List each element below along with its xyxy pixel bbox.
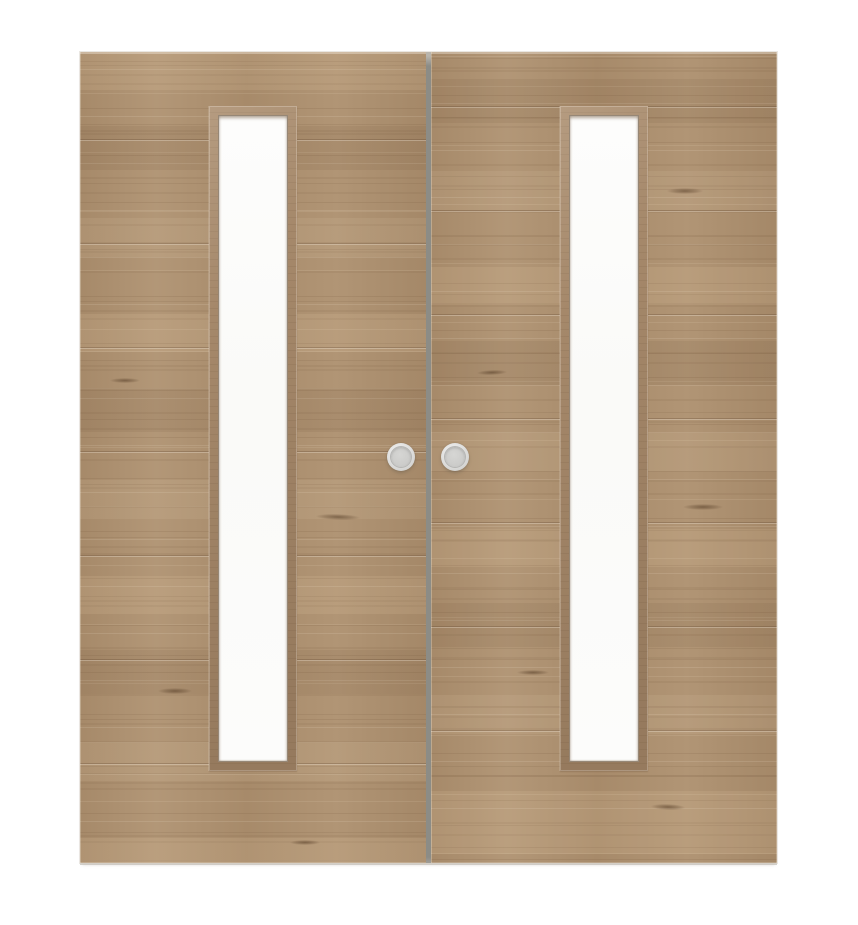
left-handle-recess bbox=[391, 447, 411, 467]
wood-knot bbox=[476, 369, 506, 375]
wood-knot bbox=[517, 670, 549, 675]
wood-knot bbox=[650, 803, 684, 810]
product-image bbox=[0, 0, 858, 925]
double-door-assembly bbox=[80, 52, 777, 863]
right-door-glazing-frame bbox=[560, 106, 648, 771]
left-door-glass-panel bbox=[218, 115, 288, 762]
left-door-glazing-frame bbox=[209, 106, 297, 771]
wood-knot bbox=[683, 504, 723, 510]
wood-knot bbox=[316, 513, 360, 521]
wood-knot bbox=[110, 378, 140, 383]
right-door-flush-pull-handle bbox=[441, 443, 469, 471]
wood-knot bbox=[290, 840, 320, 845]
right-door bbox=[431, 52, 778, 863]
door-meeting-seam bbox=[426, 52, 431, 863]
wood-knot bbox=[667, 188, 703, 194]
right-handle-recess bbox=[445, 447, 465, 467]
left-door bbox=[80, 52, 427, 863]
wood-knot bbox=[158, 688, 192, 694]
left-door-flush-pull-handle bbox=[387, 443, 415, 471]
right-door-glass-panel bbox=[569, 115, 639, 762]
